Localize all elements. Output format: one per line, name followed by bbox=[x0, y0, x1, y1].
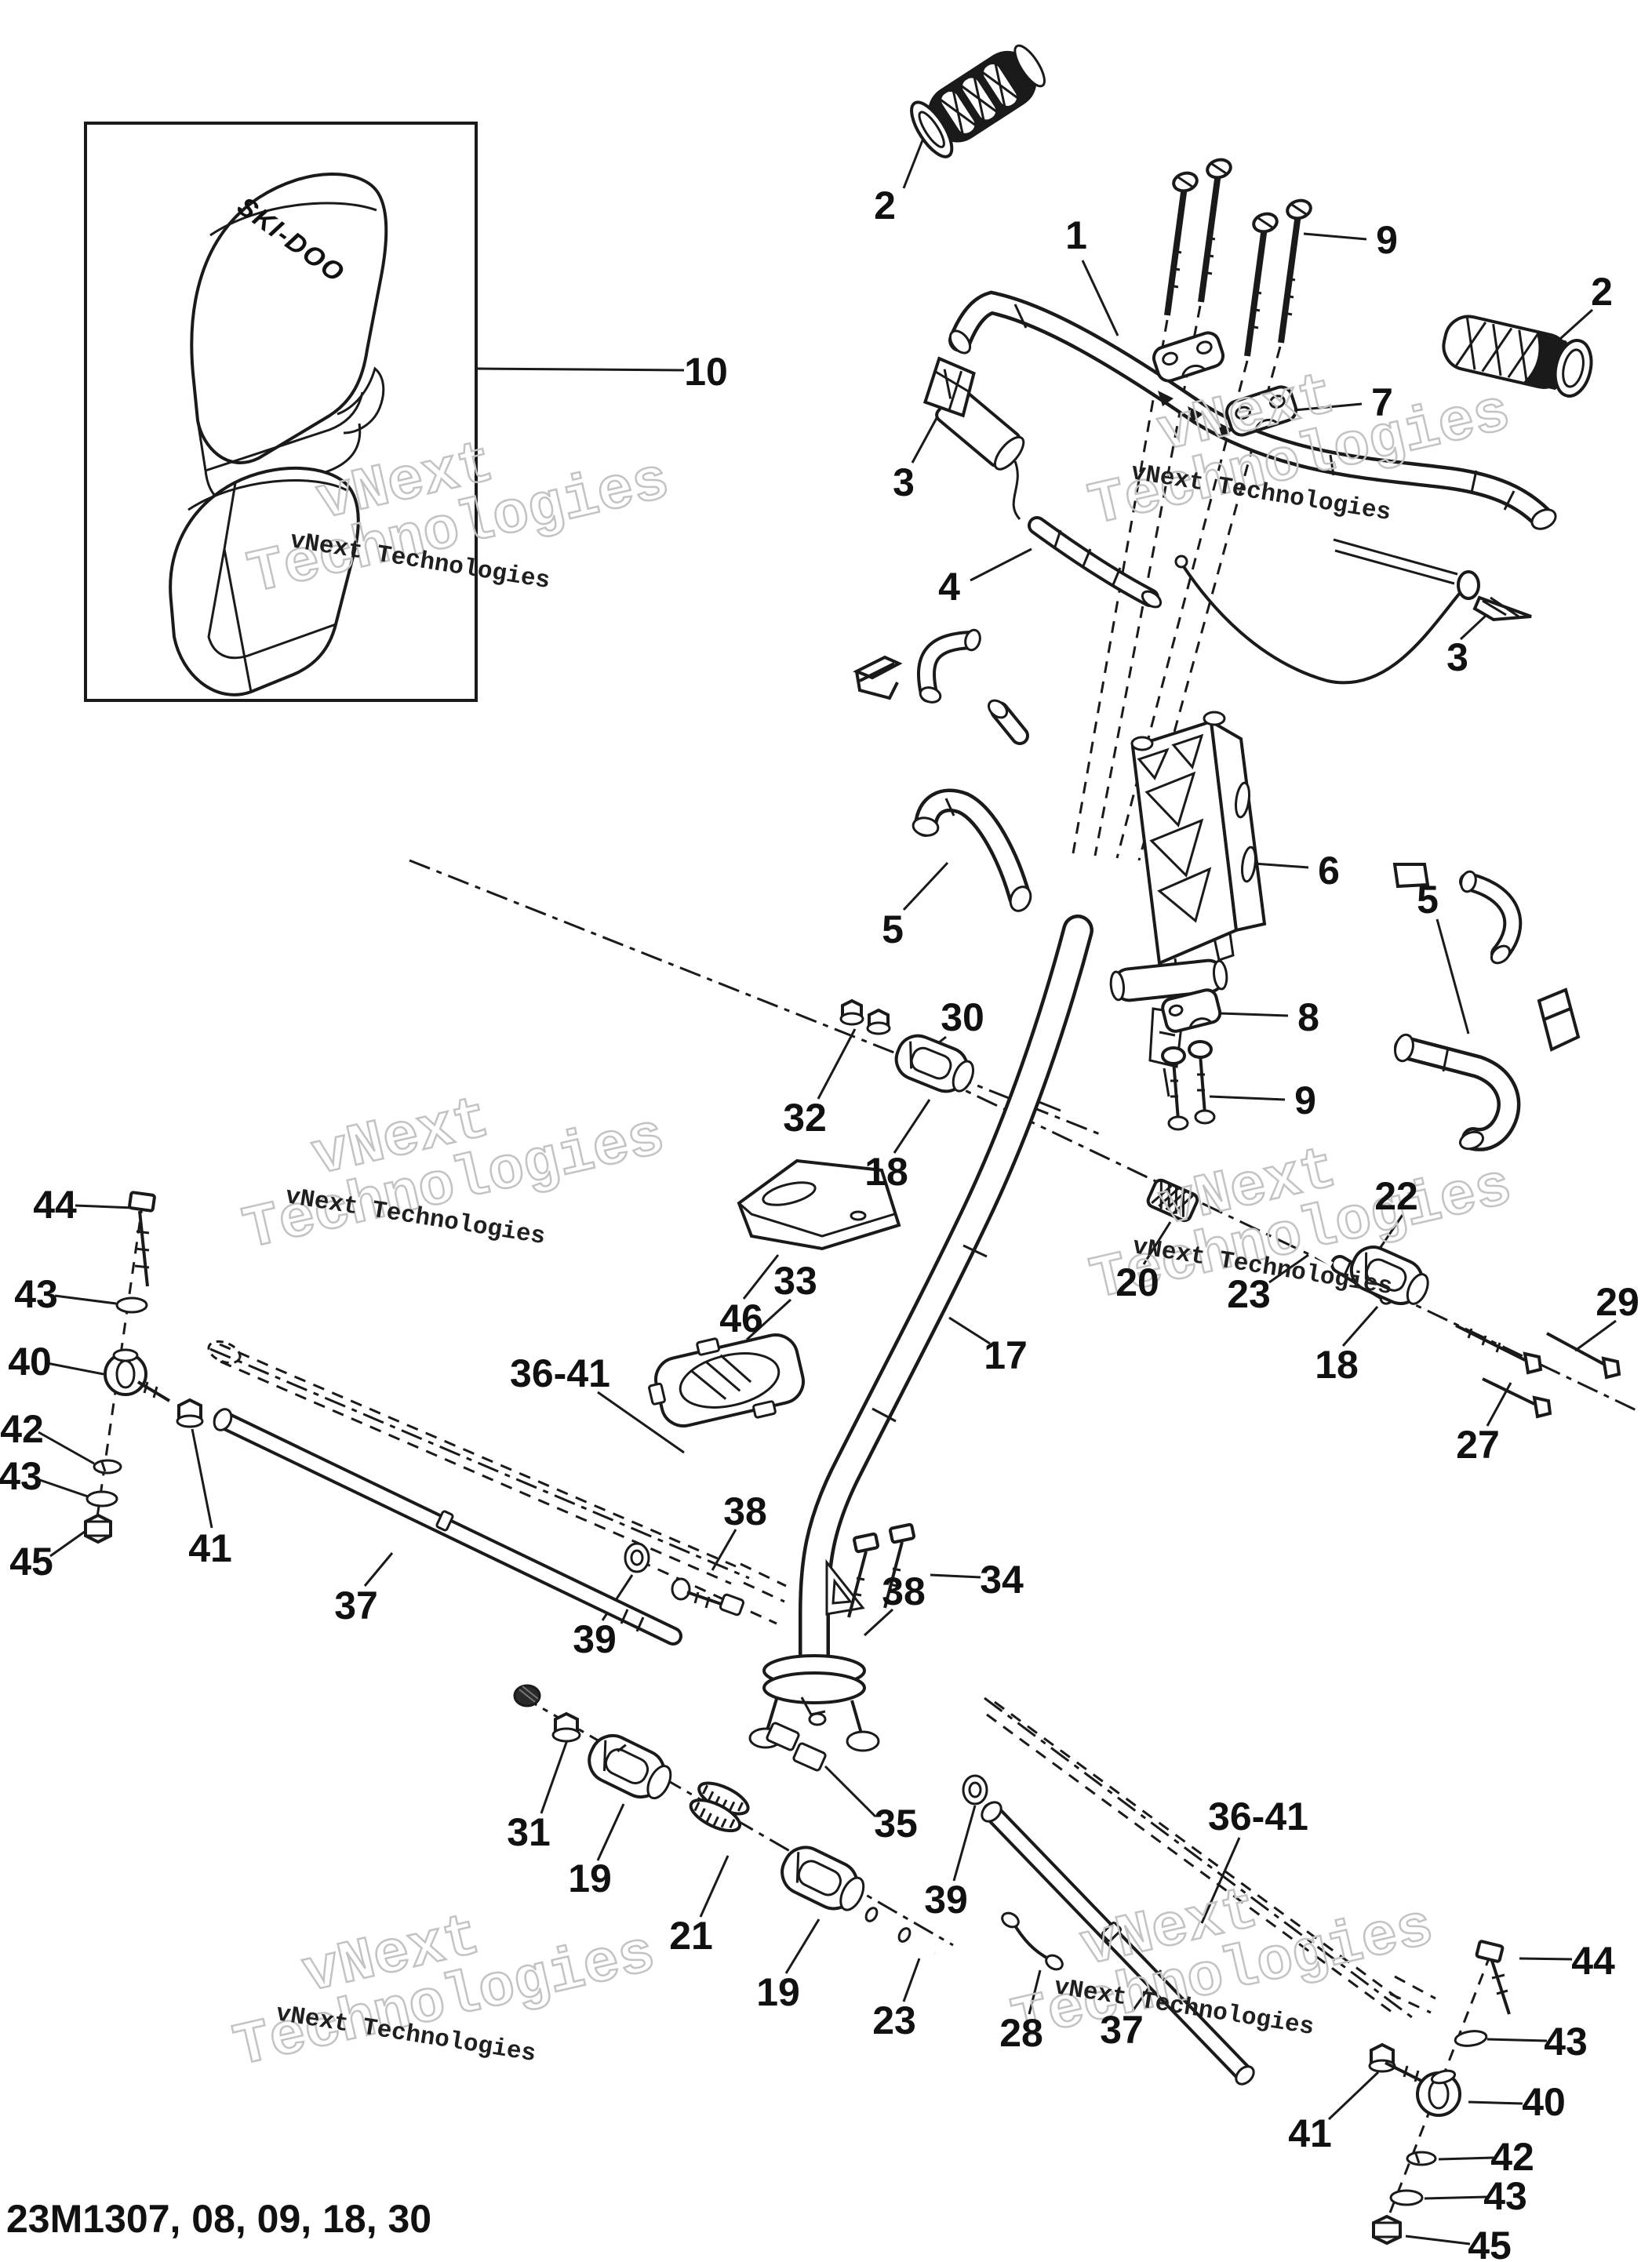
part-label-7: 7 bbox=[1371, 383, 1393, 422]
part-label-17: 17 bbox=[984, 1336, 1028, 1375]
part-label-1: 1 bbox=[1065, 216, 1087, 255]
part-label-32: 32 bbox=[783, 1098, 827, 1137]
nut-41-left bbox=[177, 1400, 202, 1427]
part-label-43: 43 bbox=[14, 1275, 58, 1314]
sleeve-left bbox=[985, 697, 1020, 736]
elbow-small-right bbox=[1459, 870, 1513, 966]
screws-lower bbox=[1163, 1042, 1214, 1129]
grip-left bbox=[904, 35, 1054, 162]
grip-element-right bbox=[1334, 540, 1531, 620]
part-label-5: 5 bbox=[882, 910, 904, 949]
part-label-3: 3 bbox=[893, 463, 915, 502]
elbow-5-right bbox=[1392, 1033, 1508, 1152]
washer-43-right-bottom bbox=[1391, 2191, 1422, 2205]
part-label-40: 40 bbox=[1522, 2082, 1566, 2122]
part-label-28: 28 bbox=[999, 2013, 1043, 2053]
washer-42-left bbox=[94, 1460, 121, 1473]
part-label-39: 39 bbox=[573, 1620, 617, 1659]
part-label-45: 45 bbox=[1468, 2226, 1512, 2262]
part-label-43: 43 bbox=[1483, 2177, 1527, 2216]
washer-39-left bbox=[625, 1544, 649, 1572]
part-label-44: 44 bbox=[33, 1185, 77, 1224]
coupler-19-right bbox=[775, 1840, 871, 1919]
part-label-19: 19 bbox=[568, 1859, 612, 1898]
nut-39-lower bbox=[963, 1776, 987, 1804]
part-label-18: 18 bbox=[864, 1152, 908, 1191]
part-label-35: 35 bbox=[874, 1804, 918, 1843]
elbow-small-left bbox=[919, 628, 982, 704]
part-label-37: 37 bbox=[334, 1586, 378, 1625]
part-label-9: 9 bbox=[1376, 220, 1398, 260]
screws-top bbox=[1167, 157, 1312, 356]
knurled-pin-20 bbox=[1146, 1178, 1199, 1222]
inset-box: SKI-DOO bbox=[86, 123, 476, 700]
brake-hose bbox=[1013, 461, 1163, 610]
tie-rod-end-40-left bbox=[105, 1350, 169, 1401]
bolts-27 bbox=[1456, 1326, 1550, 1416]
part-label-8: 8 bbox=[1297, 998, 1319, 1037]
nut-45-left bbox=[86, 1515, 111, 1542]
bushings-21 bbox=[686, 1777, 752, 1838]
coupler-18-upper bbox=[890, 1030, 980, 1100]
part-label-36-41: 36-41 bbox=[1208, 1797, 1308, 1836]
part-label-9: 9 bbox=[1294, 1081, 1316, 1120]
part-label-43: 43 bbox=[0, 1456, 42, 1496]
part-label-10: 10 bbox=[684, 352, 728, 391]
part-label-40: 40 bbox=[8, 1342, 52, 1381]
washer-43-left-2 bbox=[87, 1492, 117, 1506]
grip-right bbox=[1439, 311, 1596, 400]
part-label-41: 41 bbox=[188, 1529, 232, 1568]
part-label-42: 42 bbox=[1490, 2137, 1534, 2177]
part-label-36-41: 36-41 bbox=[510, 1354, 610, 1393]
part-label-42: 42 bbox=[0, 1409, 44, 1449]
part-label-37: 37 bbox=[1100, 2010, 1144, 2049]
nuts-32 bbox=[841, 1001, 890, 1034]
parts-diagram-page: SKI-DOO bbox=[0, 0, 1652, 2262]
part-label-33: 33 bbox=[773, 1261, 817, 1300]
grip-element-left bbox=[909, 350, 1041, 474]
nut-45-right bbox=[1374, 2217, 1400, 2243]
part-label-4: 4 bbox=[938, 567, 960, 606]
riser-block bbox=[1132, 712, 1264, 987]
part-label-18: 18 bbox=[1315, 1345, 1359, 1384]
part-label-2: 2 bbox=[1591, 272, 1613, 311]
part-label-41: 41 bbox=[1288, 2114, 1332, 2153]
sleeve-right bbox=[1539, 990, 1578, 1049]
part-label-21: 21 bbox=[669, 1916, 713, 1955]
washer-43-left bbox=[117, 1298, 147, 1312]
throttle-cable bbox=[1181, 563, 1464, 682]
bolt-38-left bbox=[672, 1579, 744, 1616]
part-label-30: 30 bbox=[941, 998, 984, 1037]
part-label-3: 3 bbox=[1446, 638, 1468, 677]
hose-clip bbox=[857, 657, 899, 698]
tie-rod-left bbox=[211, 1406, 673, 1636]
tie-rod-end-40-right bbox=[1385, 2063, 1460, 2115]
part-label-5: 5 bbox=[1417, 880, 1439, 919]
part-label-20: 20 bbox=[1115, 1263, 1159, 1302]
part-label-45: 45 bbox=[9, 1542, 53, 1581]
part-label-43: 43 bbox=[1544, 2022, 1588, 2061]
washer-42-right bbox=[1407, 2152, 1435, 2165]
part-label-22: 22 bbox=[1374, 1176, 1418, 1216]
part-label-46: 46 bbox=[719, 1299, 763, 1338]
part-label-38: 38 bbox=[882, 1572, 926, 1611]
part-label-2: 2 bbox=[874, 186, 896, 225]
coupler-18-lower bbox=[1345, 1241, 1435, 1313]
part-label-27: 27 bbox=[1456, 1425, 1500, 1464]
part-label-39: 39 bbox=[924, 1880, 968, 1919]
footer-part-code: 23M1307, 08, 09, 18, 30 bbox=[6, 2196, 431, 2242]
part-label-38: 38 bbox=[723, 1492, 767, 1531]
part-label-31: 31 bbox=[507, 1813, 551, 1852]
cap-nut-31 bbox=[515, 1686, 580, 1741]
part-label-23: 23 bbox=[1227, 1275, 1271, 1314]
link-28 bbox=[999, 1911, 1064, 1973]
part-label-29: 29 bbox=[1596, 1282, 1639, 1322]
part-label-44: 44 bbox=[1571, 1941, 1615, 1980]
part-label-23: 23 bbox=[872, 2001, 916, 2040]
part-label-6: 6 bbox=[1318, 851, 1340, 890]
nut-41-right bbox=[1370, 2045, 1395, 2071]
bolt-29 bbox=[1547, 1333, 1619, 1377]
part-label-19: 19 bbox=[756, 1973, 800, 2012]
part-label-34: 34 bbox=[980, 1560, 1024, 1599]
elbow-5-left bbox=[912, 798, 1034, 915]
